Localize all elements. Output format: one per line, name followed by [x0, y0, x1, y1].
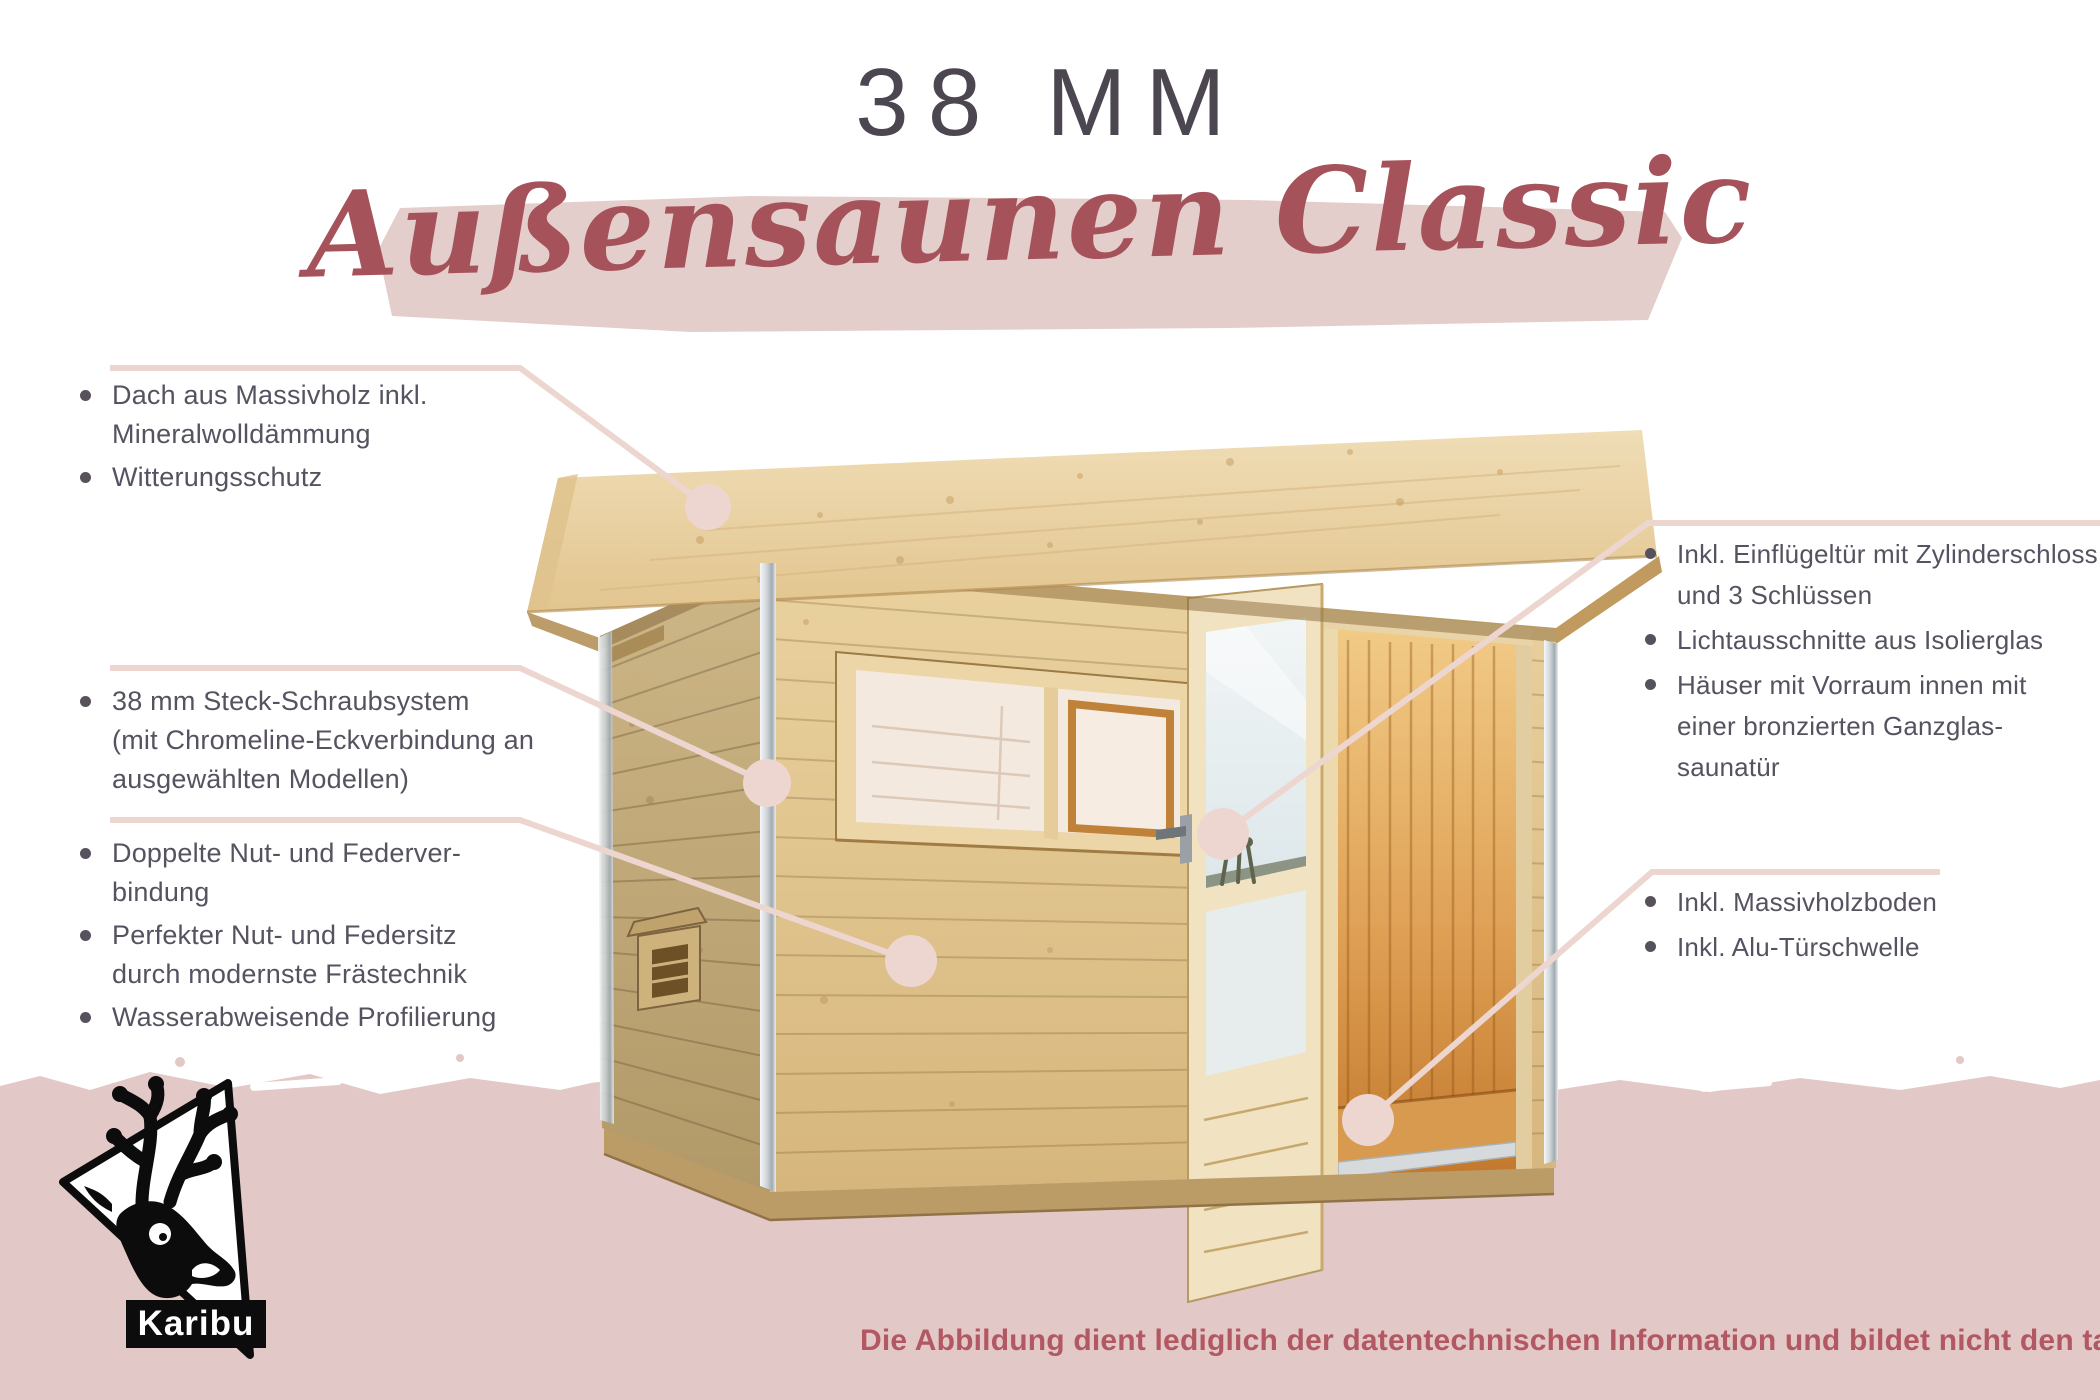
bullet-icon	[1645, 882, 1677, 907]
feature-group-walls: 38 mm Steck-Schraubsystem (mit Chromelin…	[80, 682, 534, 803]
bullet-icon	[80, 458, 112, 483]
disclaimer-text: Die Abbildung dient lediglich der datent…	[860, 1324, 2040, 1358]
karibu-logo: Karibu	[42, 1072, 292, 1382]
vent-box	[628, 908, 706, 1010]
feature-line: Mineralwolldämmung	[112, 415, 428, 454]
feature-item: Häuser mit Vorraum innen mit einer bronz…	[1645, 665, 2098, 788]
bullet-icon	[1645, 620, 1677, 645]
feature-item: Doppelte Nut- und Federver- bindung	[80, 834, 497, 912]
feature-item: Perfekter Nut- und Federsitz durch moder…	[80, 916, 497, 994]
feature-item: Lichtausschnitte aus Isolierglas	[1645, 620, 2098, 661]
feature-line: Dach aus Massivholz inkl.	[112, 376, 428, 415]
dot-roof	[685, 484, 731, 530]
feature-line: Inkl. Einflügeltür mit Zylinderschloss	[1677, 534, 2098, 575]
feature-line: Lichtausschnitte aus Isolierglas	[1677, 620, 2043, 661]
bullet-icon	[80, 998, 112, 1023]
bullet-icon	[80, 834, 112, 859]
feature-group-roof: Dach aus Massivholz inkl. Mineralwolldäm…	[80, 376, 428, 501]
feature-line: ausgewählten Modellen)	[112, 760, 534, 799]
feature-line: Inkl. Massivholzboden	[1677, 882, 1937, 923]
feature-line: bindung	[112, 873, 461, 912]
feature-item: Wasserabweisende Profilierung	[80, 998, 497, 1037]
infographic-canvas: 38 MM Außensaunen Classic Dach aus Massi…	[0, 0, 2100, 1400]
feature-line: Häuser mit Vorraum innen mit	[1677, 665, 2027, 706]
feature-item: 38 mm Steck-Schraubsystem (mit Chromelin…	[80, 682, 534, 799]
feature-group-floor: Inkl. Massivholzboden Inkl. Alu-Türschwe…	[1645, 882, 1937, 972]
logo-label: Karibu	[126, 1300, 266, 1348]
feature-line: Witterungsschutz	[112, 458, 322, 497]
dot-door	[1197, 808, 1249, 860]
feature-line: Doppelte Nut- und Federver-	[112, 834, 461, 873]
sauna-building	[527, 430, 1662, 1302]
feature-line: Inkl. Alu-Türschwelle	[1677, 927, 1920, 968]
feature-line: durch modernste Frästechnik	[112, 955, 467, 994]
feature-group-joinery: Doppelte Nut- und Federver- bindung Perf…	[80, 834, 497, 1041]
dot-corner	[743, 759, 791, 807]
bullet-icon	[80, 376, 112, 401]
feature-item: Inkl. Alu-Türschwelle	[1645, 927, 1937, 968]
dot-wall	[885, 935, 937, 987]
feature-item: Inkl. Massivholzboden	[1645, 882, 1937, 923]
feature-line: saunatür	[1677, 747, 2027, 788]
bullet-icon	[1645, 927, 1677, 952]
feature-line: Perfekter Nut- und Federsitz	[112, 916, 467, 955]
sauna-window	[836, 652, 1198, 856]
feature-line: und 3 Schlüssen	[1677, 575, 2098, 616]
feature-item: Inkl. Einflügeltür mit Zylinderschloss u…	[1645, 534, 2098, 616]
bullet-icon	[1645, 665, 1677, 690]
feature-item: Witterungsschutz	[80, 458, 428, 497]
bullet-icon	[80, 916, 112, 941]
dot-floor	[1342, 1094, 1394, 1146]
feature-item: Dach aus Massivholz inkl. Mineralwolldäm…	[80, 376, 428, 454]
feature-line: 38 mm Steck-Schraubsystem	[112, 682, 534, 721]
title-banner: Außensaunen Classic	[300, 140, 1760, 360]
feature-line: einer bronzierten Ganzglas-	[1677, 706, 2027, 747]
bullet-icon	[1645, 534, 1677, 559]
bullet-icon	[80, 682, 112, 707]
feature-line: Wasserabweisende Profilierung	[112, 998, 497, 1037]
feature-group-door: Inkl. Einflügeltür mit Zylinderschloss u…	[1645, 534, 2098, 792]
feature-line: (mit Chromeline-Eckverbindung an	[112, 721, 534, 760]
